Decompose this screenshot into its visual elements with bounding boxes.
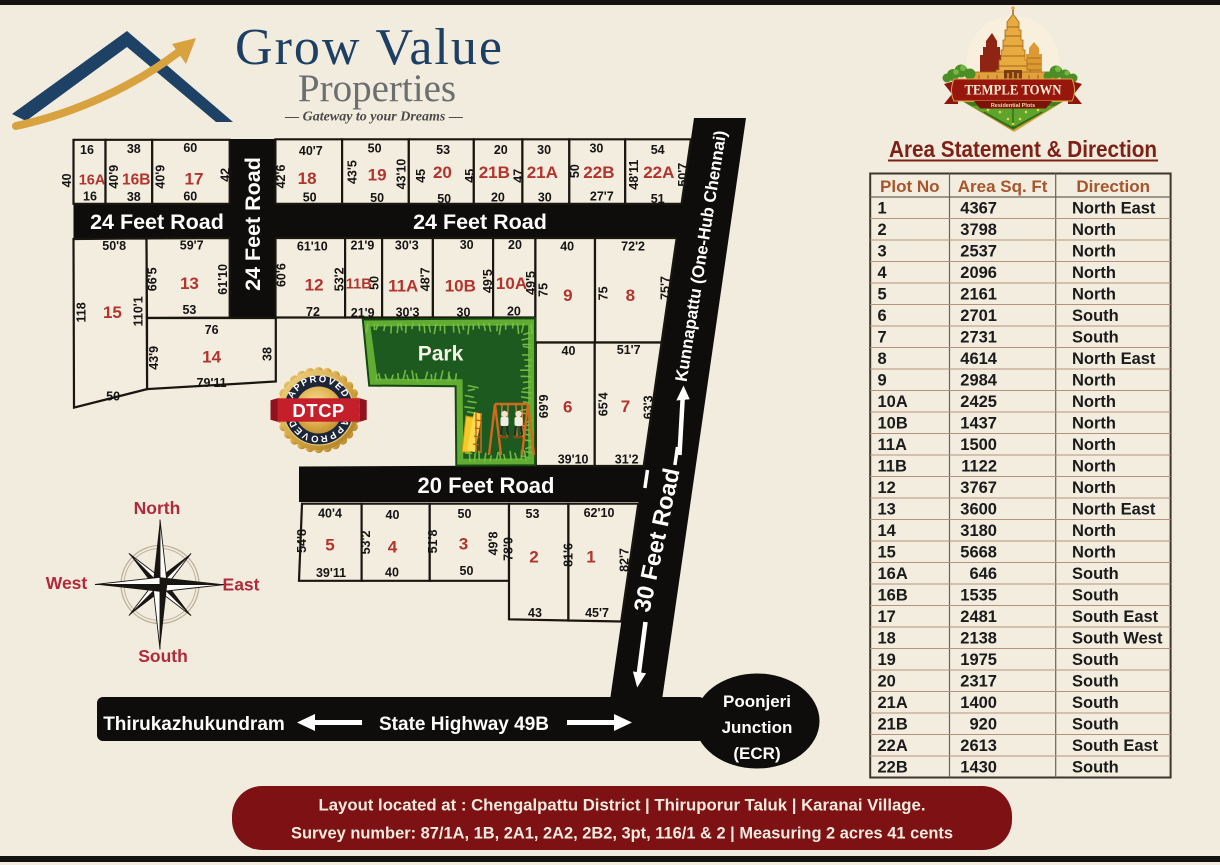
svg-text:Layout located at : Chengalpat: Layout located at : Chengalpattu Distric… xyxy=(319,796,926,815)
svg-text:59'7: 59'7 xyxy=(180,238,204,252)
svg-text:11A: 11A xyxy=(388,277,418,296)
svg-text:(ECR): (ECR) xyxy=(733,744,780,763)
svg-text:30: 30 xyxy=(537,143,551,157)
svg-text:22A: 22A xyxy=(878,737,908,755)
svg-text:50'7: 50'7 xyxy=(676,163,690,187)
svg-text:1400: 1400 xyxy=(960,694,997,712)
svg-text:17: 17 xyxy=(185,170,204,189)
svg-text:24 Feet Road: 24 Feet Road xyxy=(413,210,547,234)
svg-text:63'3: 63'3 xyxy=(642,395,656,419)
svg-text:10A: 10A xyxy=(496,274,527,293)
svg-text:5: 5 xyxy=(878,286,887,304)
svg-text:53'2: 53'2 xyxy=(359,531,373,555)
svg-text:3767: 3767 xyxy=(960,479,997,497)
svg-text:49'8: 49'8 xyxy=(486,532,500,556)
svg-text:2161: 2161 xyxy=(960,286,997,304)
svg-text:45'7: 45'7 xyxy=(585,606,609,620)
svg-text:North: North xyxy=(1072,479,1116,497)
svg-text:50: 50 xyxy=(458,507,472,521)
svg-text:9: 9 xyxy=(878,372,887,390)
svg-text:3: 3 xyxy=(878,243,887,261)
svg-text:North East: North East xyxy=(1072,200,1156,218)
svg-text:42: 42 xyxy=(219,168,233,182)
svg-text:62'10: 62'10 xyxy=(584,506,615,520)
svg-text:50: 50 xyxy=(460,564,474,578)
svg-text:21B: 21B xyxy=(878,716,908,734)
svg-text:31'2: 31'2 xyxy=(615,453,639,467)
svg-text:20: 20 xyxy=(491,190,505,204)
svg-text:30'3: 30'3 xyxy=(396,306,420,320)
svg-text:North: North xyxy=(1072,264,1116,282)
svg-text:West: West xyxy=(46,573,88,593)
svg-text:66'5: 66'5 xyxy=(146,267,160,291)
svg-text:North: North xyxy=(1072,522,1116,540)
svg-text:19: 19 xyxy=(878,651,896,669)
svg-text:8: 8 xyxy=(626,286,635,305)
svg-text:53: 53 xyxy=(526,507,540,521)
svg-text:60: 60 xyxy=(183,189,197,203)
svg-text:2: 2 xyxy=(529,548,538,567)
svg-text:1975: 1975 xyxy=(960,651,997,669)
svg-text:1: 1 xyxy=(586,548,595,567)
svg-text:North: North xyxy=(1072,286,1116,304)
svg-text:3180: 3180 xyxy=(960,522,997,540)
svg-text:North: North xyxy=(1072,458,1116,476)
svg-text:16: 16 xyxy=(80,143,94,157)
svg-text:Park: Park xyxy=(418,342,464,365)
svg-text:81'6: 81'6 xyxy=(561,543,575,567)
svg-text:16A: 16A xyxy=(79,172,106,188)
svg-text:18: 18 xyxy=(298,169,317,188)
svg-text:16B: 16B xyxy=(122,171,150,188)
svg-text:14: 14 xyxy=(202,348,221,367)
svg-text:1535: 1535 xyxy=(960,587,997,605)
svg-text:20: 20 xyxy=(507,305,521,319)
svg-text:21B: 21B xyxy=(479,163,510,182)
svg-text:24 Feet Road: 24 Feet Road xyxy=(90,210,224,234)
svg-text:45: 45 xyxy=(414,169,428,183)
svg-text:53: 53 xyxy=(182,303,196,317)
svg-text:1122: 1122 xyxy=(961,458,997,476)
svg-text:4: 4 xyxy=(878,264,888,282)
svg-text:4367: 4367 xyxy=(960,200,997,218)
svg-text:South: South xyxy=(1072,694,1119,712)
svg-text:42'6: 42'6 xyxy=(274,165,288,189)
svg-text:50: 50 xyxy=(303,190,317,204)
svg-text:South: South xyxy=(1072,673,1119,691)
svg-text:11A: 11A xyxy=(878,436,907,454)
svg-text:North: North xyxy=(1072,393,1116,411)
svg-text:8: 8 xyxy=(878,350,887,368)
svg-text:Plot No: Plot No xyxy=(880,177,940,196)
svg-text:27'7: 27'7 xyxy=(590,190,614,204)
svg-text:Properties: Properties xyxy=(298,67,456,110)
svg-text:51'7: 51'7 xyxy=(617,343,641,357)
svg-text:Junction: Junction xyxy=(722,718,793,737)
svg-text:20: 20 xyxy=(494,143,508,157)
svg-text:South East: South East xyxy=(1072,608,1159,626)
svg-text:38: 38 xyxy=(127,142,141,156)
svg-text:South: South xyxy=(1072,587,1119,605)
svg-text:51: 51 xyxy=(651,192,665,206)
svg-text:10B: 10B xyxy=(878,415,908,433)
svg-text:2701: 2701 xyxy=(960,307,997,325)
svg-text:13: 13 xyxy=(878,501,896,519)
svg-text:40: 40 xyxy=(60,173,74,187)
svg-text:13: 13 xyxy=(180,274,199,293)
svg-text:50: 50 xyxy=(106,390,120,404)
svg-text:17: 17 xyxy=(878,608,896,626)
svg-text:16: 16 xyxy=(83,189,97,203)
svg-text:18: 18 xyxy=(878,630,896,648)
svg-text:72: 72 xyxy=(306,305,320,319)
svg-text:South East: South East xyxy=(1072,737,1159,755)
svg-text:21'9: 21'9 xyxy=(350,239,374,253)
svg-text:51'8: 51'8 xyxy=(426,530,440,554)
svg-text:3: 3 xyxy=(459,535,468,554)
svg-text:60'6: 60'6 xyxy=(275,263,289,287)
svg-text:40: 40 xyxy=(385,565,399,579)
svg-text:48'11: 48'11 xyxy=(627,160,641,190)
svg-text:Direction: Direction xyxy=(1076,177,1150,196)
svg-text:75: 75 xyxy=(537,283,551,297)
svg-text:11B: 11B xyxy=(878,458,907,476)
svg-text:79'11: 79'11 xyxy=(197,376,227,390)
svg-text:1500: 1500 xyxy=(960,436,997,454)
svg-text:4614: 4614 xyxy=(960,350,998,368)
svg-text:21A: 21A xyxy=(527,163,558,182)
svg-text:76: 76 xyxy=(205,323,219,337)
svg-text:82'7: 82'7 xyxy=(617,548,631,572)
svg-text:7: 7 xyxy=(621,397,630,416)
svg-text:40'7: 40'7 xyxy=(299,144,323,158)
svg-text:38: 38 xyxy=(260,347,274,361)
svg-text:16B: 16B xyxy=(878,587,908,605)
svg-text:30: 30 xyxy=(457,306,471,320)
svg-text:43'9: 43'9 xyxy=(147,346,161,370)
svg-text:12: 12 xyxy=(878,479,896,497)
svg-text:2613: 2613 xyxy=(960,737,997,755)
svg-text:54: 54 xyxy=(651,143,665,157)
svg-text:North: North xyxy=(1072,243,1116,261)
svg-text:24 Feet Road: 24 Feet Road xyxy=(241,157,265,291)
svg-text:South: South xyxy=(1072,651,1119,669)
svg-text:49'5: 49'5 xyxy=(481,269,495,293)
svg-text:1: 1 xyxy=(878,200,887,218)
svg-text:21'9: 21'9 xyxy=(351,306,375,320)
svg-text:North: North xyxy=(1072,544,1116,562)
svg-text:60: 60 xyxy=(183,141,197,155)
svg-text:North: North xyxy=(1072,372,1116,390)
svg-text:30: 30 xyxy=(589,142,603,156)
svg-text:38: 38 xyxy=(127,190,141,204)
svg-text:15: 15 xyxy=(878,544,896,562)
svg-text:2425: 2425 xyxy=(960,393,997,411)
svg-text:40: 40 xyxy=(560,239,574,253)
svg-text:North: North xyxy=(1072,415,1116,433)
svg-text:5668: 5668 xyxy=(960,544,997,562)
svg-text:20 Feet Road: 20 Feet Road xyxy=(418,473,555,498)
svg-text:61'10: 61'10 xyxy=(297,239,328,253)
svg-text:22B: 22B xyxy=(583,163,614,182)
svg-text:South: South xyxy=(1072,759,1119,777)
svg-text:6: 6 xyxy=(563,398,572,417)
svg-text:43'5: 43'5 xyxy=(346,160,360,184)
svg-text:20: 20 xyxy=(878,673,896,691)
svg-text:North East: North East xyxy=(1072,501,1156,519)
svg-text:50: 50 xyxy=(568,164,582,178)
svg-text:20: 20 xyxy=(433,163,452,182)
svg-text:50'8: 50'8 xyxy=(102,239,126,253)
svg-text:12: 12 xyxy=(305,276,324,295)
svg-text:47: 47 xyxy=(511,169,525,183)
svg-text:TEMPLE TOWN: TEMPLE TOWN xyxy=(965,83,1062,99)
svg-text:3600: 3600 xyxy=(960,501,997,519)
svg-text:54'8: 54'8 xyxy=(295,529,309,553)
svg-text:South: South xyxy=(1072,307,1119,325)
svg-text:Area Statement & Direction: Area Statement & Direction xyxy=(889,136,1157,162)
svg-text:20: 20 xyxy=(508,238,522,252)
svg-text:53: 53 xyxy=(436,143,450,157)
svg-text:30: 30 xyxy=(460,238,474,252)
svg-text:North: North xyxy=(1072,221,1116,239)
svg-text:40: 40 xyxy=(386,508,400,522)
svg-text:72'2: 72'2 xyxy=(621,239,645,253)
svg-text:30: 30 xyxy=(538,190,552,204)
svg-text:75: 75 xyxy=(597,286,611,300)
svg-text:118: 118 xyxy=(74,302,88,322)
svg-text:Area Sq. Ft: Area Sq. Ft xyxy=(958,177,1048,196)
svg-text:State Highway 49B: State Highway 49B xyxy=(379,714,549,735)
svg-text:2138: 2138 xyxy=(960,630,997,648)
svg-text:DTCP: DTCP xyxy=(292,400,344,421)
svg-text:2: 2 xyxy=(878,221,887,239)
svg-text:14: 14 xyxy=(878,522,897,540)
svg-text:2731: 2731 xyxy=(960,329,997,347)
svg-text:40'9: 40'9 xyxy=(107,165,121,189)
svg-text:3798: 3798 xyxy=(960,221,997,239)
svg-text:South: South xyxy=(138,646,188,666)
svg-text:1430: 1430 xyxy=(960,759,997,777)
svg-text:— Gateway to your Dreams —: — Gateway to your Dreams — xyxy=(284,110,463,125)
svg-text:920: 920 xyxy=(969,716,997,734)
svg-text:22B: 22B xyxy=(878,759,908,777)
svg-text:43: 43 xyxy=(528,606,542,620)
svg-text:22A: 22A xyxy=(643,163,674,182)
svg-text:39'10: 39'10 xyxy=(558,453,589,467)
svg-text:1437: 1437 xyxy=(960,415,997,433)
svg-text:2317: 2317 xyxy=(960,673,997,691)
svg-text:21A: 21A xyxy=(878,694,908,712)
svg-text:11B: 11B xyxy=(346,277,372,293)
svg-text:5: 5 xyxy=(325,536,334,555)
svg-text:North East: North East xyxy=(1072,350,1156,368)
svg-text:2984: 2984 xyxy=(960,372,998,390)
svg-text:Poonjeri: Poonjeri xyxy=(723,692,791,711)
svg-text:2537: 2537 xyxy=(960,243,997,261)
svg-text:2096: 2096 xyxy=(960,264,997,282)
svg-text:South West: South West xyxy=(1072,630,1163,648)
svg-text:Survey number: 87/1A, 1B, 2A1,: Survey number: 87/1A, 1B, 2A1, 2A2, 2B2,… xyxy=(291,824,953,843)
svg-text:15: 15 xyxy=(103,303,122,322)
svg-text:45: 45 xyxy=(463,169,477,183)
svg-text:North: North xyxy=(134,498,181,518)
svg-text:48'7: 48'7 xyxy=(419,267,433,291)
svg-text:65'4: 65'4 xyxy=(597,392,611,416)
svg-text:50: 50 xyxy=(370,191,384,205)
svg-text:10B: 10B xyxy=(445,277,476,296)
svg-text:South: South xyxy=(1072,716,1119,734)
svg-text:50: 50 xyxy=(368,142,382,156)
svg-text:10A: 10A xyxy=(878,393,908,411)
svg-text:South: South xyxy=(1072,565,1119,583)
svg-text:North: North xyxy=(1072,436,1116,454)
svg-text:78'9: 78'9 xyxy=(501,537,515,561)
svg-text:43'10: 43'10 xyxy=(394,159,408,190)
svg-text:69'9: 69'9 xyxy=(537,394,551,418)
svg-text:40'9: 40'9 xyxy=(154,165,168,189)
svg-text:South: South xyxy=(1072,329,1119,347)
svg-text:4: 4 xyxy=(388,538,398,557)
svg-text:2481: 2481 xyxy=(960,608,997,626)
svg-text:75'7: 75'7 xyxy=(658,276,672,300)
svg-text:7: 7 xyxy=(878,329,887,347)
svg-text:40'4: 40'4 xyxy=(318,507,342,521)
svg-text:Residential Plots: Residential Plots xyxy=(991,103,1035,109)
svg-text:39'11: 39'11 xyxy=(316,566,346,580)
svg-text:110'1: 110'1 xyxy=(131,296,145,326)
svg-text:6: 6 xyxy=(878,307,887,325)
svg-text:50: 50 xyxy=(437,192,451,206)
svg-text:30'3: 30'3 xyxy=(395,239,419,253)
svg-text:19: 19 xyxy=(368,166,387,185)
svg-text:16A: 16A xyxy=(878,565,908,583)
svg-text:53'2: 53'2 xyxy=(333,267,347,291)
svg-text:9: 9 xyxy=(563,286,572,305)
svg-text:East: East xyxy=(223,575,260,595)
svg-text:61'10: 61'10 xyxy=(216,264,230,295)
svg-text:646: 646 xyxy=(969,565,997,583)
svg-text:40: 40 xyxy=(562,344,576,358)
svg-text:Thirukazhukundram: Thirukazhukundram xyxy=(103,714,285,735)
